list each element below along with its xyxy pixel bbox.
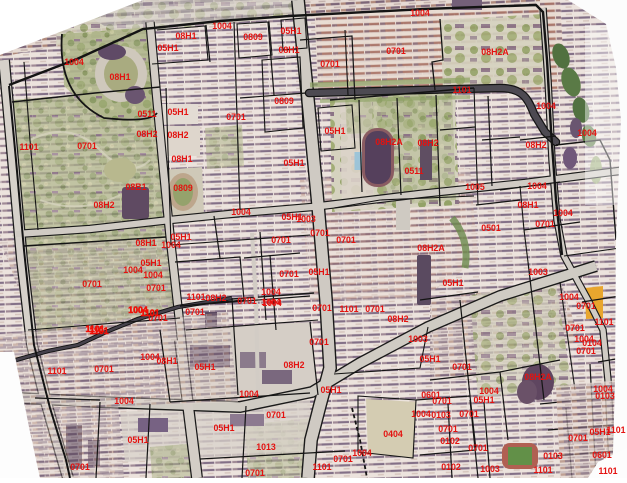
svg-text:0701: 0701 [333, 454, 353, 464]
svg-text:0701: 0701 [266, 410, 286, 420]
svg-text:08H1: 08H1 [135, 238, 156, 248]
svg-text:0701: 0701 [576, 346, 596, 356]
svg-text:1004: 1004 [261, 297, 281, 307]
svg-text:1004: 1004 [212, 21, 232, 31]
svg-text:0701: 0701 [271, 235, 291, 245]
svg-text:0701: 0701 [312, 303, 332, 313]
svg-text:08H2: 08H2 [205, 293, 226, 303]
svg-text:0701: 0701 [237, 296, 257, 306]
svg-text:0701: 0701 [309, 337, 329, 347]
svg-text:1004: 1004 [261, 287, 281, 297]
svg-text:1003: 1003 [296, 214, 316, 224]
svg-text:05H1: 05H1 [194, 362, 215, 372]
svg-text:0701: 0701 [468, 443, 488, 453]
svg-text:08H2: 08H2 [283, 360, 304, 370]
svg-text:08H1: 08H1 [156, 356, 177, 366]
svg-text:05H1: 05H1 [324, 126, 345, 136]
svg-text:0701: 0701 [535, 219, 555, 229]
svg-text:0511: 0511 [137, 109, 156, 119]
svg-text:05H1: 05H1 [140, 258, 161, 268]
svg-text:05H1: 05H1 [473, 395, 494, 405]
svg-text:0701: 0701 [70, 462, 90, 472]
svg-text:1003: 1003 [408, 334, 428, 344]
svg-text:1101: 1101 [598, 466, 617, 476]
svg-text:0103: 0103 [543, 451, 563, 461]
svg-text:0511: 0511 [404, 166, 423, 176]
svg-text:0701: 0701 [365, 304, 385, 314]
svg-text:1101: 1101 [186, 292, 205, 302]
svg-text:0701: 0701 [94, 364, 114, 374]
svg-text:0701: 0701 [459, 409, 479, 419]
svg-text:0103: 0103 [595, 391, 615, 401]
svg-text:1004: 1004 [161, 240, 181, 250]
svg-text:1101: 1101 [533, 465, 552, 475]
svg-text:0701: 0701 [320, 59, 340, 69]
svg-text:08H2: 08H2 [136, 129, 157, 139]
svg-text:0809: 0809 [274, 96, 294, 106]
svg-text:1004: 1004 [536, 101, 556, 111]
svg-text:1004: 1004 [239, 389, 259, 399]
svg-text:0701: 0701 [438, 424, 458, 434]
svg-text:1004: 1004 [231, 207, 251, 217]
svg-text:1101: 1101 [19, 142, 38, 152]
svg-text:1004: 1004 [577, 128, 597, 138]
svg-text:1004: 1004 [527, 181, 547, 191]
svg-text:1101: 1101 [594, 317, 613, 327]
svg-text:1005: 1005 [465, 182, 485, 192]
svg-text:0701: 0701 [386, 46, 406, 56]
svg-text:0701: 0701 [568, 433, 588, 443]
svg-text:0809: 0809 [173, 183, 193, 193]
svg-text:1101: 1101 [85, 324, 104, 334]
svg-text:1004: 1004 [64, 57, 84, 67]
svg-text:1013: 1013 [256, 442, 276, 452]
svg-text:0102: 0102 [441, 462, 461, 472]
svg-text:05H1: 05H1 [283, 158, 304, 168]
svg-text:05H1: 05H1 [157, 43, 178, 53]
svg-text:0404: 0404 [383, 429, 403, 439]
svg-text:08H2: 08H2 [167, 130, 188, 140]
svg-text:0701: 0701 [576, 301, 596, 311]
svg-text:0701: 0701 [565, 323, 585, 333]
svg-text:0701: 0701 [226, 112, 246, 122]
svg-text:08H2: 08H2 [93, 200, 114, 210]
svg-text:1101: 1101 [140, 308, 159, 318]
svg-text:0701: 0701 [185, 307, 205, 317]
svg-text:1004: 1004 [352, 448, 372, 458]
svg-text:08B1: 08B1 [125, 182, 146, 192]
svg-text:0809: 0809 [243, 32, 263, 42]
svg-text:08H1: 08H1 [171, 154, 192, 164]
svg-text:05H1: 05H1 [213, 423, 234, 433]
svg-text:08H1: 08H1 [278, 45, 299, 55]
svg-text:1004: 1004 [123, 265, 143, 275]
svg-text:1004: 1004 [114, 396, 134, 406]
svg-text:1101: 1101 [452, 85, 471, 95]
svg-text:0103: 0103 [431, 410, 451, 420]
svg-text:0701: 0701 [279, 269, 299, 279]
svg-text:08H2A: 08H2A [524, 372, 552, 382]
svg-text:05H1: 05H1 [419, 354, 440, 364]
svg-text:1004: 1004 [410, 8, 430, 18]
svg-text:08H2A: 08H2A [417, 243, 445, 253]
svg-text:1004: 1004 [553, 208, 573, 218]
svg-text:0701: 0701 [452, 362, 472, 372]
svg-text:1101: 1101 [339, 304, 358, 314]
svg-text:0701: 0701 [310, 228, 330, 238]
svg-text:0701: 0701 [146, 283, 166, 293]
svg-text:08H2A: 08H2A [481, 47, 509, 57]
svg-text:05H1: 05H1 [308, 267, 329, 277]
svg-text:05H1: 05H1 [127, 435, 148, 445]
svg-text:1003: 1003 [528, 267, 548, 277]
svg-text:0102: 0102 [440, 436, 460, 446]
svg-text:08H2A: 08H2A [375, 137, 403, 147]
svg-text:08H1: 08H1 [109, 72, 130, 82]
svg-text:0701: 0701 [432, 396, 452, 406]
svg-text:05H1: 05H1 [167, 107, 188, 117]
svg-text:1101: 1101 [312, 462, 331, 472]
svg-text:1101: 1101 [47, 366, 66, 376]
svg-text:08H1: 08H1 [175, 31, 196, 41]
svg-text:08H2: 08H2 [525, 140, 546, 150]
svg-text:0601: 0601 [592, 450, 612, 460]
svg-text:05H1: 05H1 [442, 278, 463, 288]
svg-text:05H1: 05H1 [280, 26, 301, 36]
svg-text:08H1: 08H1 [517, 200, 538, 210]
svg-text:1003: 1003 [480, 464, 500, 474]
svg-text:0501: 0501 [481, 223, 501, 233]
svg-text:1004: 1004 [411, 409, 431, 419]
svg-text:05H1: 05H1 [320, 385, 341, 395]
svg-text:08H2: 08H2 [387, 314, 408, 324]
svg-text:1101: 1101 [606, 425, 625, 435]
svg-text:0701: 0701 [245, 468, 265, 478]
svg-text:1004: 1004 [143, 270, 163, 280]
svg-text:0701: 0701 [77, 141, 97, 151]
svg-text:0701: 0701 [82, 279, 102, 289]
svg-text:08H2: 08H2 [417, 138, 438, 148]
svg-text:0701: 0701 [336, 235, 356, 245]
